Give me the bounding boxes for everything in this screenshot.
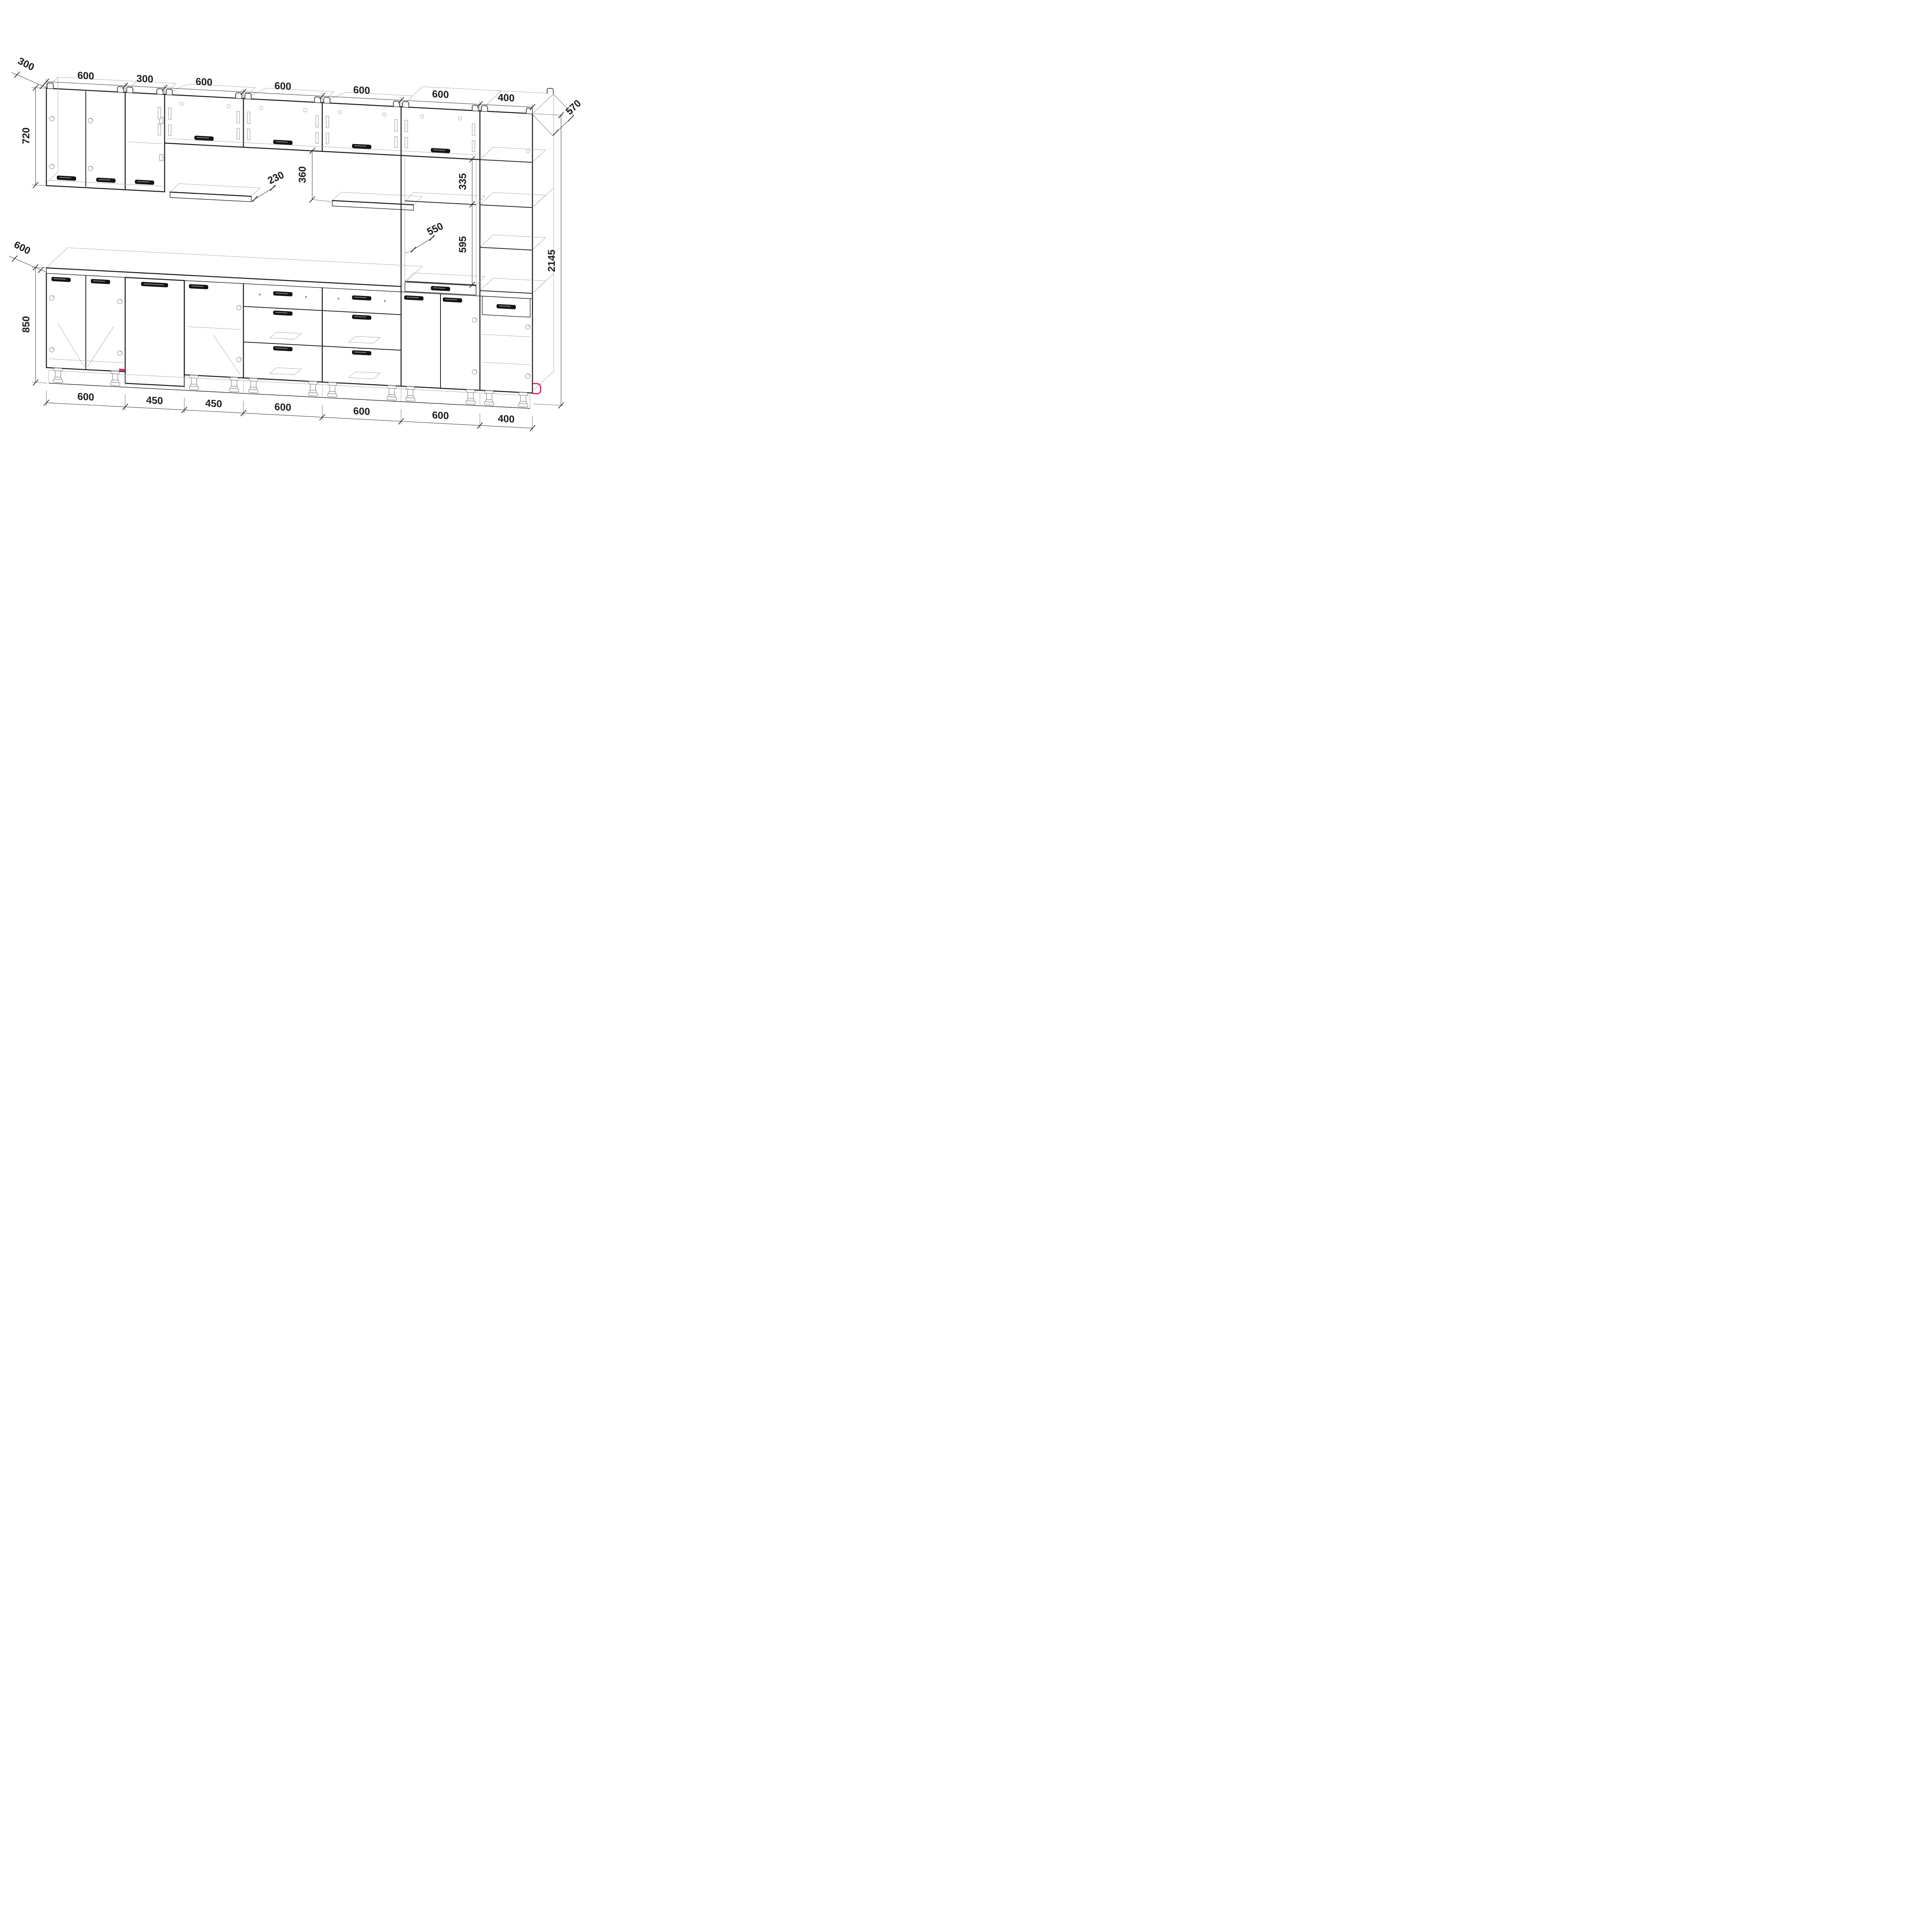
dimension-upper-depth-300: 300 (12, 54, 48, 90)
flap-hinge-icon (405, 120, 408, 148)
floating-shelf-left (170, 183, 260, 202)
flap-hinge-icon (247, 112, 250, 140)
open-shelf-tower (480, 90, 554, 394)
dim-label: 595 (457, 236, 468, 253)
dim-label: 2145 (546, 249, 557, 272)
wall-cabinet-row (46, 62, 554, 212)
dimension-upper-height-720: 720 (20, 84, 46, 189)
dimension-oven-depth-550: 550 (405, 218, 445, 255)
dim-label: 335 (457, 173, 468, 190)
dimension-tall-depth-570: 570 (532, 93, 583, 137)
dim-label: 450 (205, 397, 222, 410)
dimension-base-height-850: 850 (20, 264, 47, 386)
door-handle (189, 284, 208, 289)
door-handle (57, 175, 76, 181)
dim-label: 600 (274, 80, 291, 92)
drawer-handle (497, 304, 516, 310)
dimension-shelf-depth-230: 230 (251, 167, 286, 204)
hinge-icon (49, 164, 54, 169)
drawer-handle (352, 295, 371, 301)
dim-label: 400 (498, 413, 514, 425)
dimension-total-height-2145: 2145 (533, 111, 564, 408)
mount-bracket-icon (47, 83, 53, 88)
dim-label: 600 (432, 409, 449, 422)
dim-label: 600 (353, 84, 370, 96)
hinge-icon (88, 166, 93, 171)
flap-hinge-icon (326, 116, 329, 144)
drawer-handle (431, 286, 450, 291)
flap-hinge-icon (472, 124, 475, 151)
hinge-plate-icon (160, 155, 163, 161)
door-handle (404, 295, 423, 301)
dim-label: 400 (498, 92, 514, 104)
drawer-handle (273, 291, 293, 297)
accent-mark (119, 369, 126, 371)
door-handle (96, 178, 116, 183)
drawing-sheet: 600 300 600 600 600 600 400 600 450 450 … (0, 0, 597, 489)
door-handle (135, 180, 154, 185)
flap-hinge-icon (316, 116, 318, 143)
countertop (46, 247, 532, 299)
dim-label: 300 (136, 73, 153, 85)
dim-label: 360 (296, 166, 308, 184)
flap-hinge-icon (168, 108, 171, 136)
door-handle (141, 282, 168, 287)
drawer-handle (273, 346, 293, 352)
dim-label: 600 (274, 401, 291, 413)
hinge-icon (49, 116, 54, 121)
dimension-niche-top-335: 335 (457, 155, 475, 207)
dim-label: 300 (16, 55, 36, 73)
drawer-handle (273, 311, 293, 316)
dim-label: 230 (266, 169, 286, 187)
drawer-handle (352, 315, 371, 320)
dim-label: 550 (425, 220, 445, 238)
dim-label: 720 (20, 127, 32, 145)
flap-hinge-icon (237, 111, 240, 139)
dishwasher-door (125, 277, 184, 386)
dim-label: 600 (77, 70, 94, 82)
dimension-bottom-chain: 600 450 450 600 600 600 400 (44, 389, 535, 432)
drawer-handle (352, 350, 371, 355)
dimension-base-depth-600: 600 (9, 238, 46, 273)
dim-label: 600 (353, 405, 370, 417)
dimension-wall-gap-360: 360 (296, 147, 332, 204)
dim-label: 570 (563, 97, 583, 117)
door-handle (443, 298, 462, 303)
dim-label: 600 (196, 76, 212, 88)
dim-label: 600 (77, 391, 94, 403)
dim-label: 450 (146, 394, 163, 406)
hinge-icon (88, 118, 93, 123)
dim-label: 600 (12, 238, 32, 257)
dim-label: 850 (20, 316, 32, 333)
adjustable-legs (53, 368, 528, 407)
door-handle (51, 277, 71, 282)
cabinet-drawing-svg: 600 300 600 600 600 600 400 600 450 450 … (0, 0, 597, 489)
flap-hinge-icon (395, 120, 397, 148)
door-handle (91, 279, 110, 284)
accent-bracket (532, 383, 541, 394)
dim-label: 600 (432, 88, 449, 100)
